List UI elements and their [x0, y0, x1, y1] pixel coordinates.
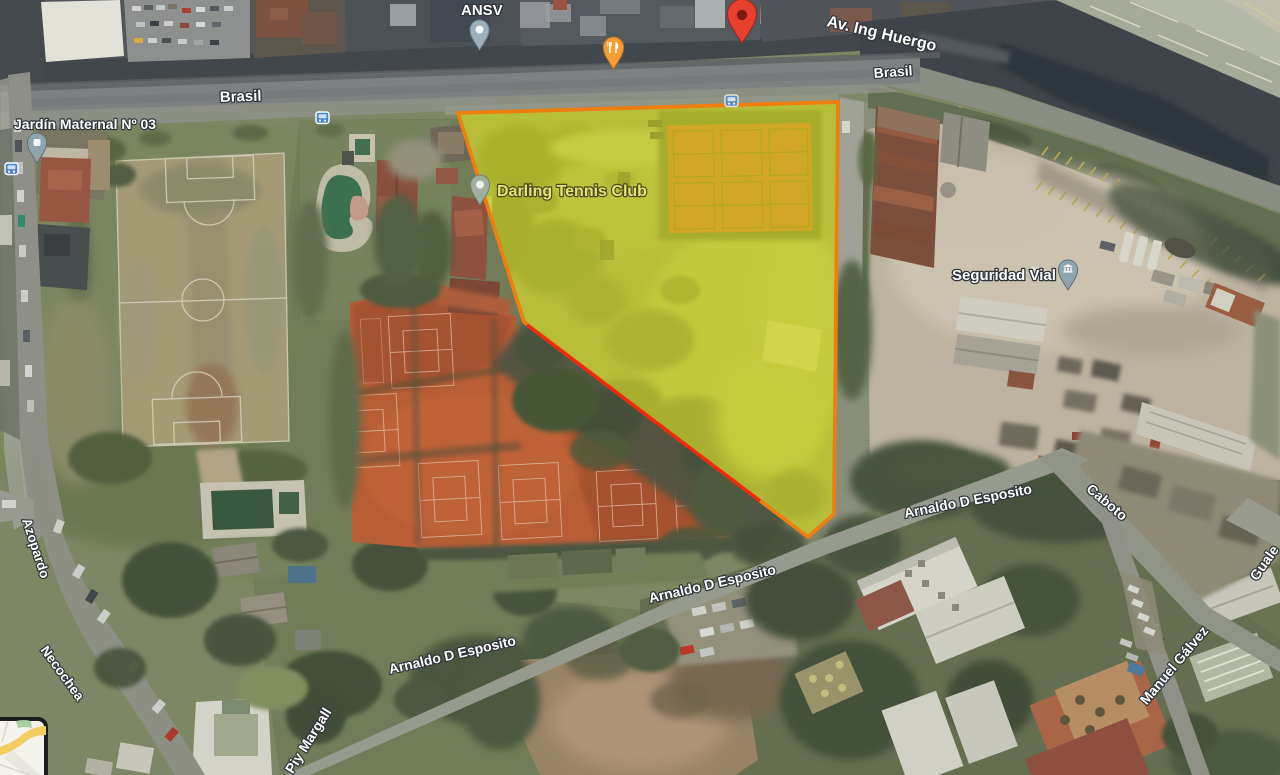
svg-text:ANSV: ANSV	[461, 2, 503, 19]
svg-text:Brasil: Brasil	[220, 88, 262, 106]
svg-text:Jardín Maternal Nº 03: Jardín Maternal Nº 03	[14, 116, 156, 132]
svg-text:Seguridad Vial: Seguridad Vial	[952, 267, 1056, 284]
svg-text:Brasil: Brasil	[873, 62, 913, 81]
svg-text:Darling Tennis Club: Darling Tennis Club	[497, 183, 647, 200]
